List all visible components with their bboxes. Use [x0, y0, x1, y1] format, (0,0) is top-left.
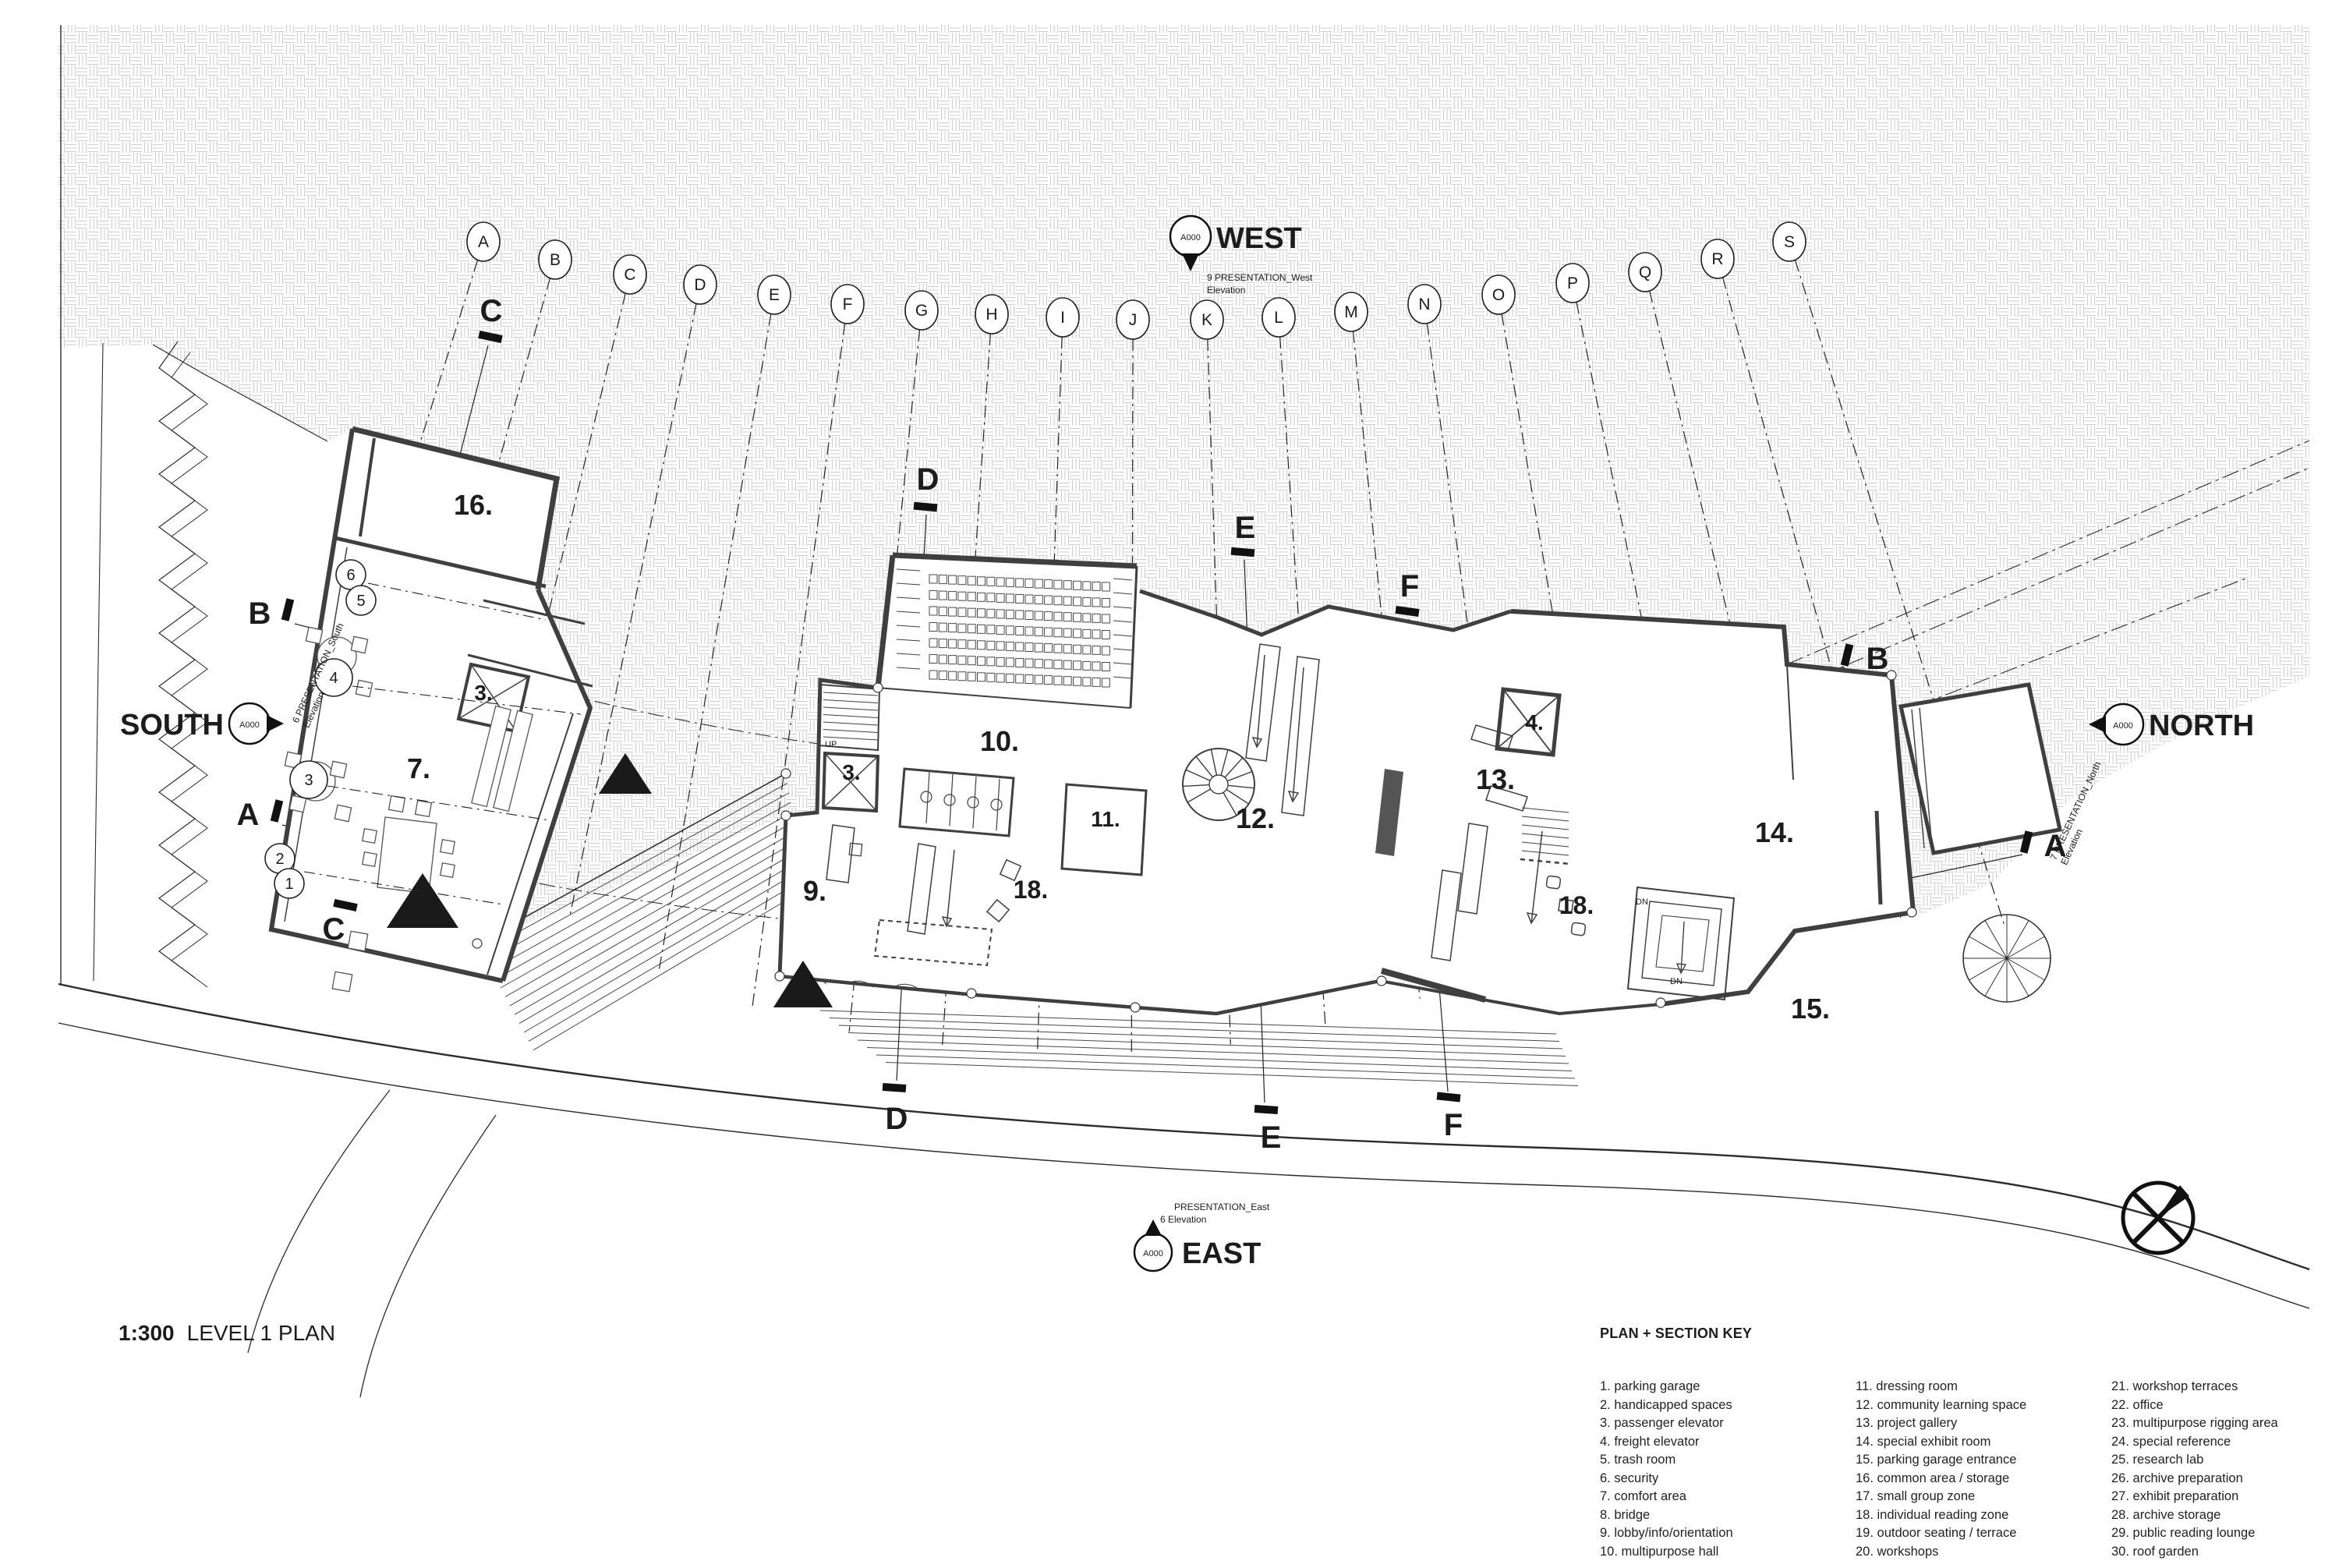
seat [1083, 678, 1091, 686]
sheet-ref: A000 [2113, 721, 2133, 731]
seat [1035, 611, 1042, 620]
seat [1016, 595, 1024, 603]
grid-bubble-S: S [1773, 222, 1806, 261]
plan-section-key: PLAN + SECTION KEY 1. parking garage2. h… [1600, 1326, 2302, 1561]
grid-letter-label: G [915, 302, 928, 320]
seat [1016, 611, 1024, 619]
grid-letter-label: P [1567, 274, 1578, 292]
legend-item: 29. public reading lounge [2111, 1524, 2302, 1543]
seat [1063, 677, 1071, 685]
seat [1063, 581, 1071, 589]
seat [1092, 662, 1100, 671]
legend-item: 24. special reference [2111, 1433, 2302, 1452]
seat [1054, 644, 1062, 653]
grid-letter-label: N [1418, 296, 1430, 313]
seat [1102, 663, 1109, 671]
seat [1016, 579, 1024, 587]
seat [958, 656, 966, 664]
seat [929, 623, 937, 632]
grid-number-label: 6 [346, 567, 355, 584]
seat [1045, 612, 1053, 621]
seat [1035, 643, 1042, 652]
legend-item: 10. multipurpose hall [1600, 1543, 1856, 1562]
section-marker-d-top: D [917, 462, 939, 497]
grid-bubble-K: K [1191, 300, 1223, 339]
seat [1025, 643, 1033, 652]
seat [968, 672, 975, 681]
seat [1025, 595, 1033, 603]
legend-item: 5. trash room [1600, 1451, 1856, 1470]
seat [1054, 660, 1062, 669]
grid-letter-label: R [1711, 250, 1723, 268]
grid-letter-label: C [624, 266, 635, 284]
seat [949, 671, 957, 680]
grid-number-label: 1 [285, 876, 293, 893]
grid-letter-label: M [1344, 303, 1358, 321]
seat [1063, 645, 1071, 653]
grid-letter-label: E [769, 286, 780, 304]
seat [968, 576, 975, 585]
seat [1074, 677, 1081, 685]
seat [1035, 675, 1042, 684]
section-marker-c-top: C [480, 294, 503, 328]
seat [978, 625, 985, 633]
seat [1045, 596, 1053, 604]
seat [1092, 582, 1100, 590]
grid-bubble-M: M [1335, 292, 1368, 331]
seat [1006, 610, 1014, 618]
legend-item: 19. outdoor seating / terrace [1856, 1524, 2111, 1543]
grid-number-label: 3 [304, 772, 313, 789]
seat [1092, 646, 1100, 654]
seat [1074, 661, 1081, 670]
seat [1045, 676, 1053, 685]
seat [978, 673, 985, 681]
seat [1092, 598, 1100, 607]
legend-item: 26. archive preparation [2111, 1470, 2302, 1488]
grid-number-label: 5 [356, 593, 365, 610]
seat [1074, 645, 1081, 653]
seat [1035, 596, 1042, 604]
legend-heading: PLAN + SECTION KEY [1600, 1326, 2302, 1342]
grid-bubble-1: 1 [274, 869, 304, 898]
seat [1102, 631, 1109, 639]
seat [968, 640, 975, 649]
seat [939, 671, 947, 680]
seat [1092, 678, 1100, 686]
grid-bubble-I: I [1046, 298, 1079, 337]
legend-item: 6. security [1600, 1470, 1856, 1488]
seat [1083, 582, 1091, 590]
seat [1074, 613, 1081, 621]
seat [1045, 580, 1053, 589]
room-number-label: 18. [1559, 891, 1594, 919]
seat [1045, 660, 1053, 668]
seat [929, 639, 937, 647]
legend-item: 13. project gallery [1856, 1414, 2111, 1433]
legend-item: 3. passenger elevator [1600, 1414, 1856, 1433]
seat [1025, 611, 1033, 620]
dn-label-1: DN [1636, 897, 1648, 907]
grid-letter-label: A [478, 233, 489, 251]
grid-bubble-L: L [1262, 298, 1295, 337]
section-marker-b-right: B [1867, 642, 1889, 676]
room-number-label: 9. [803, 875, 826, 907]
seat [1083, 614, 1091, 622]
seat [1016, 642, 1024, 651]
room-number-label: 14. [1755, 816, 1794, 848]
seat [1035, 579, 1042, 588]
pointer-right-icon [267, 715, 284, 732]
grid-bubble-F: F [831, 285, 864, 324]
dn-label-2: DN [1670, 977, 1683, 986]
seat [939, 655, 947, 664]
grid-letter-label: H [985, 306, 997, 324]
grid-bubble-5: 5 [346, 586, 376, 615]
legend-item: 8. bridge [1600, 1506, 1856, 1525]
legend-item: 18. individual reading zone [1856, 1506, 2111, 1525]
sheet-ref: A000 [239, 720, 260, 730]
legend-item: 22. office [2111, 1396, 2302, 1415]
grid-number-label: 2 [275, 851, 284, 868]
seat [1054, 628, 1062, 637]
west-caption-2: Elevation [1207, 285, 1245, 296]
seat [1006, 658, 1014, 667]
seat [1025, 675, 1033, 684]
grid-bubble-E: E [758, 275, 791, 314]
seat [939, 575, 947, 584]
seat [1006, 578, 1014, 586]
seat [939, 591, 947, 600]
legend-item: 25. research lab [2111, 1451, 2302, 1470]
seat [1063, 596, 1071, 605]
grid-letter-label: O [1492, 286, 1505, 304]
south-terrace-steps [820, 1011, 1578, 1086]
grid-bubble-C: C [614, 255, 646, 294]
grid-bubble-3: 3 [290, 761, 327, 798]
legend-item: 23. multipurpose rigging area [2111, 1414, 2302, 1433]
section-marker-c-bottom: C [323, 912, 345, 947]
seat [996, 657, 1004, 666]
room-number-label: 12. [1236, 802, 1275, 834]
grid-letter-label: K [1201, 311, 1212, 329]
seat [1054, 676, 1062, 685]
legend-column-1: 1. parking garage2. handicapped spaces3.… [1600, 1378, 1856, 1561]
room-number-label: 13. [1476, 763, 1515, 795]
seat [1102, 582, 1109, 591]
seat [996, 625, 1004, 634]
seat [939, 607, 947, 616]
seat [1054, 580, 1062, 589]
grid-bubble-D: D [684, 265, 717, 304]
seat [1016, 627, 1024, 635]
room-number-label: 4. [1525, 710, 1543, 734]
legend-item: 7. comfort area [1600, 1488, 1856, 1506]
grid-bubble-B: B [539, 240, 571, 279]
north-label: NORTH [2149, 710, 2254, 742]
tree-symbol [1963, 915, 2051, 1002]
room-number-label: 15. [1791, 993, 1830, 1025]
section-marker-f-top: F [1400, 569, 1419, 603]
legend-item: 16. common area / storage [1856, 1470, 2111, 1488]
grid-letter-label: Q [1639, 264, 1651, 281]
seat [1006, 594, 1014, 603]
west-caption-1: 9 PRESENTATION_West [1207, 272, 1313, 283]
seat [996, 578, 1004, 586]
section-marker-e-bottom: E [1261, 1120, 1282, 1155]
east-caption-2: 6 Elevation [1160, 1214, 1206, 1225]
seat [958, 624, 966, 632]
seat [949, 592, 957, 600]
seat [996, 642, 1004, 650]
seat [987, 625, 995, 634]
seat [1016, 659, 1024, 667]
seat [958, 608, 966, 617]
seat [1063, 660, 1071, 669]
seat [1083, 661, 1091, 670]
seat [1063, 628, 1071, 637]
grid-bubble-H: H [975, 295, 1008, 334]
seat [949, 639, 957, 648]
legend-item: 2. handicapped spaces [1600, 1396, 1856, 1415]
section-marker-b-left: B [249, 596, 271, 631]
grid-letter-label: D [694, 276, 706, 294]
plan-name-label: LEVEL 1 PLAN [187, 1321, 335, 1345]
grid-bubble-A: A [467, 222, 500, 261]
seat [1083, 646, 1091, 654]
legend-item: 30. roof garden [2111, 1543, 2302, 1562]
seat [929, 607, 937, 615]
seat [1045, 628, 1053, 636]
seat [987, 641, 995, 649]
seat [968, 657, 975, 665]
seat [1074, 597, 1081, 606]
legend-item: 17. small group zone [1856, 1488, 2111, 1506]
seat [1054, 596, 1062, 605]
seat [1006, 626, 1014, 635]
seat [987, 673, 995, 681]
seat [1102, 614, 1109, 623]
room-number-label: 10. [980, 725, 1019, 757]
pointer-up-icon [1145, 1219, 1162, 1236]
seat [929, 671, 937, 679]
seat [1045, 644, 1053, 653]
legend-item: 27. exhibit preparation [2111, 1488, 2302, 1506]
seat [968, 608, 975, 617]
seat [929, 591, 937, 600]
legend-item: 9. lobby/info/orientation [1600, 1524, 1856, 1543]
sheet-title: 1:300LEVEL 1 PLAN [119, 1321, 335, 1346]
seat [1074, 629, 1081, 638]
seat [1092, 614, 1100, 622]
seat [1006, 642, 1014, 650]
sheet-ref: A000 [1180, 233, 1201, 242]
room-number-label: 7. [407, 752, 430, 784]
legend-item: 20. workshops [1856, 1543, 2111, 1562]
room-number-label: 16. [454, 489, 493, 521]
seat [939, 623, 947, 632]
seat [958, 640, 966, 649]
seat [949, 575, 957, 584]
room-number-label: 11. [1091, 807, 1120, 831]
seat [949, 607, 957, 616]
legend-item: 15. parking garage entrance [1856, 1451, 2111, 1470]
seat [978, 657, 985, 665]
seat [1102, 599, 1109, 607]
seat [1016, 674, 1024, 683]
section-marker-a-left: A [237, 798, 260, 832]
seat [1025, 579, 1033, 588]
seat [1006, 674, 1014, 682]
seat [1035, 660, 1042, 668]
seat [1025, 659, 1033, 667]
scale-label: 1:300 [119, 1321, 175, 1345]
seat [978, 641, 985, 649]
seat [996, 610, 1004, 618]
seat [996, 593, 1004, 602]
seat [987, 577, 995, 586]
seat [1102, 678, 1109, 687]
section-marker-f-bottom: F [1444, 1108, 1463, 1142]
room-number-label: 3. [842, 760, 860, 784]
seat [929, 655, 937, 664]
grid-bubble-O: O [1482, 275, 1515, 314]
south-label: SOUTH [120, 709, 224, 742]
legend-item: 28. archive storage [2111, 1506, 2302, 1525]
legend-item: 1. parking garage [1600, 1378, 1856, 1396]
legend-item: 21. workshop terraces [2111, 1378, 2302, 1396]
seat [1054, 612, 1062, 621]
seat [978, 593, 985, 601]
seat [987, 657, 995, 666]
grid-letter-label: I [1060, 309, 1065, 327]
sheet-ref: A000 [1143, 1249, 1163, 1258]
seat [958, 672, 966, 681]
grid-bubble-Q: Q [1629, 253, 1661, 292]
legend-item: 12. community learning space [1856, 1396, 2111, 1415]
legend-column-2: 11. dressing room12. community learning … [1856, 1378, 2111, 1561]
legend-item: 11. dressing room [1856, 1378, 2111, 1396]
east-caption-1: PRESENTATION_East [1174, 1202, 1270, 1212]
seat [958, 592, 966, 600]
seat [949, 656, 957, 664]
seat [1083, 597, 1091, 606]
seat [987, 609, 995, 618]
seat [1074, 581, 1081, 589]
up-label: UP [825, 740, 837, 749]
compass-east: A000 EAST PRESENTATION_East 6 Elevation [1134, 1202, 1270, 1271]
seat [978, 609, 985, 618]
legend-item: 14. special exhibit room [1856, 1433, 2111, 1452]
seat [987, 593, 995, 602]
seat [1063, 613, 1071, 621]
grid-bubble-G: G [905, 291, 938, 330]
north-arrow-icon [2123, 1183, 2193, 1253]
seat [996, 674, 1004, 682]
seat [939, 639, 947, 648]
seat [958, 576, 966, 585]
seat [1025, 627, 1033, 635]
floor-plan-sheet: C C D D E E F F B B A A ABCDEFGHIJKLMNOP… [0, 0, 2339, 1568]
seat [1083, 629, 1091, 638]
seat [929, 575, 937, 583]
grid-letter-label: L [1274, 309, 1283, 327]
legend-item: 4. freight elevator [1600, 1433, 1856, 1452]
seat [1035, 628, 1042, 636]
grid-letter-label: B [550, 251, 561, 269]
grid-bubble-J: J [1116, 300, 1149, 339]
seat [968, 625, 975, 633]
grid-bubble-N: N [1408, 285, 1441, 324]
seat [968, 593, 975, 601]
grid-bubble-P: P [1556, 264, 1589, 303]
room-number-label: 3. [474, 681, 492, 705]
seat [978, 577, 985, 586]
section-marker-e-top: E [1235, 511, 1256, 545]
grid-bubble-R: R [1701, 239, 1734, 278]
grid-letter-label: J [1129, 311, 1138, 329]
seat [1102, 646, 1109, 655]
legend-column-3: 21. workshop terraces22. office23. multi… [2111, 1378, 2302, 1561]
west-label: WEST [1216, 222, 1302, 255]
seat [949, 624, 957, 632]
grid-letter-label: S [1784, 233, 1795, 251]
section-marker-d-bottom: D [886, 1102, 908, 1136]
seat [1092, 630, 1100, 639]
east-label: EAST [1182, 1237, 1261, 1270]
room-number-label: 18. [1014, 876, 1048, 904]
grid-letter-label: F [843, 296, 853, 313]
grid-number-label: 4 [329, 670, 338, 687]
